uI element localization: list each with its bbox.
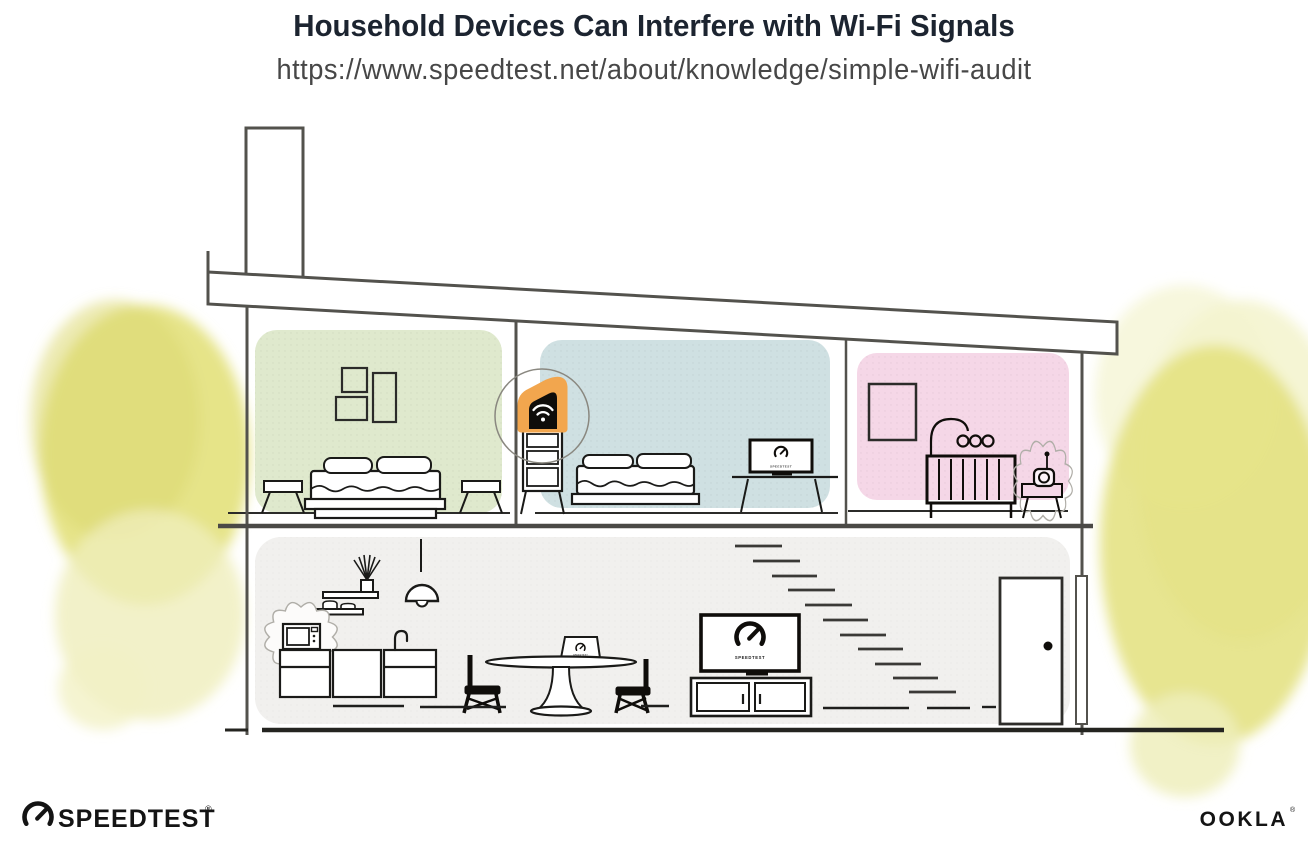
door-sidelight	[1076, 576, 1087, 724]
front-door	[1000, 578, 1062, 724]
ookla-trademark: ®	[1290, 806, 1296, 814]
house-illustration: SPEEDTEST	[0, 0, 1308, 861]
media-console	[691, 678, 811, 716]
bowl	[323, 601, 337, 609]
speedtest-trademark: ®	[205, 804, 212, 814]
bedroom-monitor-label: SPEEDTEST	[770, 465, 792, 469]
microwave	[283, 624, 320, 649]
door-knob	[1044, 642, 1053, 651]
infographic-canvas: Household Devices Can Interfere with Wi-…	[0, 0, 1308, 861]
living-room-tv: SPEEDTEST	[701, 615, 799, 676]
speedtest-wordmark: SPEEDTEST	[58, 805, 216, 833]
blue-bedroom: SPEEDTEST	[535, 340, 838, 513]
ookla-wordmark: OOKLA	[1200, 808, 1288, 831]
tv-label: SPEEDTEST	[735, 655, 765, 660]
gauge-icon	[25, 803, 52, 823]
tree-right	[1095, 285, 1308, 797]
tree-left	[30, 300, 250, 730]
speedtest-logo: SPEEDTEST ®	[25, 803, 216, 833]
pink-nursery	[848, 353, 1072, 521]
ookla-logo: OOKLA ®	[1200, 806, 1296, 831]
green-bedroom	[228, 330, 510, 518]
chimney	[246, 128, 303, 280]
ground-floor: SPEEDTEST	[255, 537, 1070, 724]
